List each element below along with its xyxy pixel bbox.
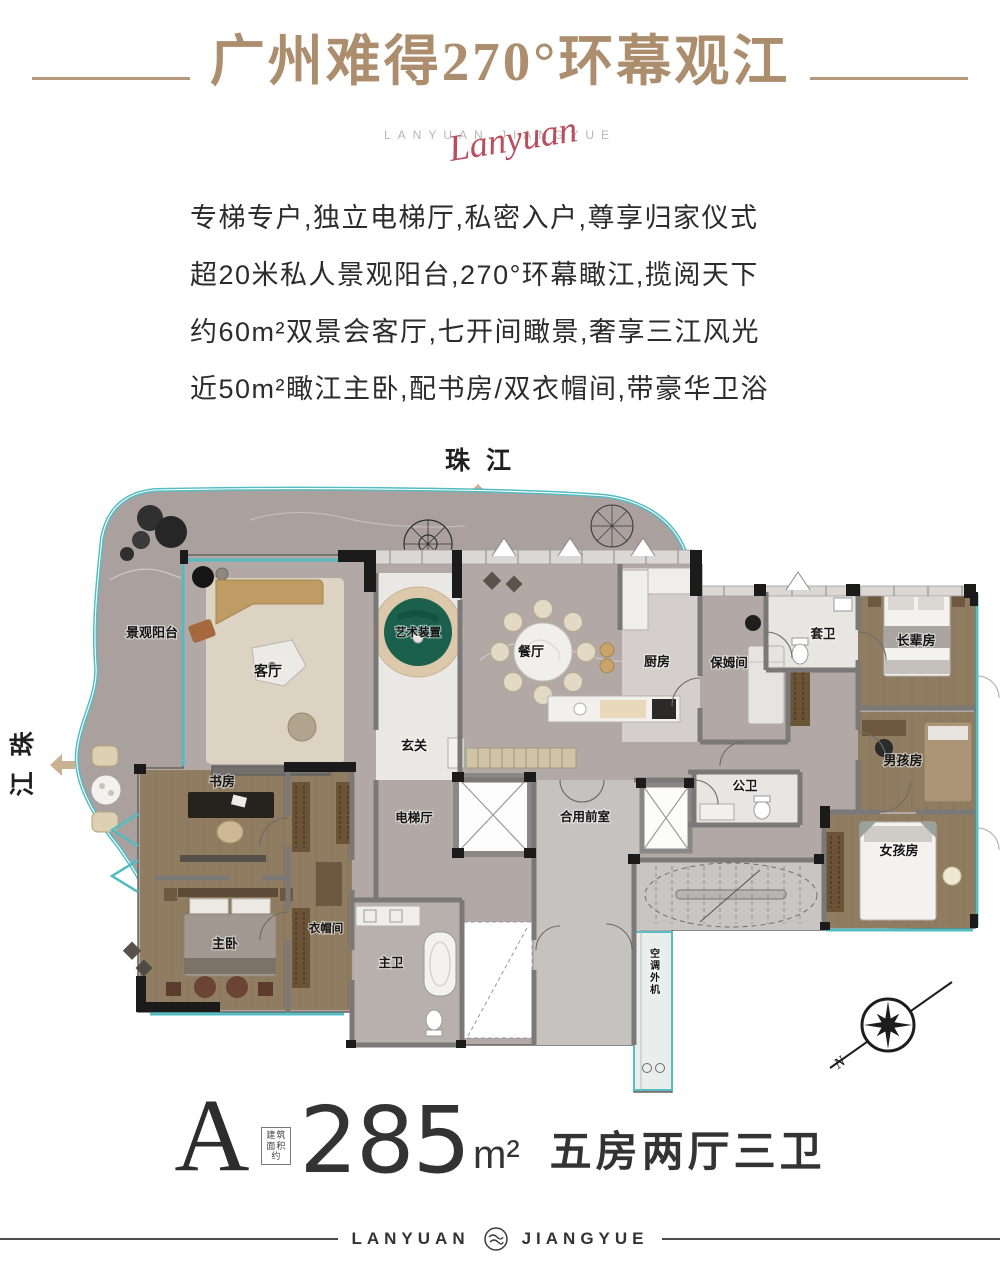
room-label-nanny: 保姆间 — [709, 655, 748, 670]
layout-text: 五房两厅三卫 — [550, 1131, 826, 1173]
room-label-master: 主卧 — [212, 936, 238, 951]
room-label-dining: 餐厅 — [517, 644, 544, 659]
river-label-top: 珠江 — [0, 441, 986, 477]
intro-text: 专梯专户,独立电梯厅,私密入户,尊享归家仪式 超20米私人景观阳台,270°环幕… — [190, 190, 810, 418]
title-rule-right — [810, 77, 968, 80]
footer-rule-right — [662, 1238, 1000, 1240]
room-label-ensuite-bath: 套卫 — [809, 626, 836, 641]
room-label-living: 客厅 — [253, 663, 282, 679]
room-label-elder: 长辈房 — [896, 633, 935, 648]
page-title-row: 广州难得270°环幕观江 — [0, 26, 1000, 98]
floorplan: 景观阳台 客厅 艺术装置 玄关 餐厅 厨房 保姆间 套卫 长辈房 男孩房 女孩房… — [0, 480, 1000, 1105]
footer-logo-icon — [483, 1226, 509, 1252]
room-label-study: 书房 — [209, 774, 235, 789]
room-label-balcony: 景观阳台 — [126, 625, 178, 640]
unit-spec: A 建筑面积约 285 m² 五房两厅三卫 — [0, 1094, 1000, 1177]
room-label-master-bath: 主卫 — [378, 955, 404, 970]
title-rule-left — [32, 77, 190, 80]
footer-brand-left: LANYUAN — [351, 1229, 469, 1249]
compass-icon: N — [830, 982, 952, 1073]
room-label-kitchen: 厨房 — [644, 654, 670, 669]
room-label-shared-lobby: 合用前室 — [560, 809, 611, 824]
room-label-elevator-hall: 电梯厅 — [395, 810, 433, 825]
intro-line-3: 约60m²双景会客厅,七开间瞰景,奢享三江风光 — [190, 304, 810, 361]
footer-brand-right: JIANGYUE — [522, 1229, 649, 1249]
footer-rule-left — [0, 1238, 338, 1240]
unit-letter: A — [174, 1094, 249, 1177]
room-label-cloakroom: 衣帽间 — [309, 921, 344, 935]
area-unit: m² — [473, 1135, 520, 1175]
page-title: 广州难得270°环幕观江 — [210, 26, 791, 98]
intro-line-2: 超20米私人景观阳台,270°环幕瞰江,揽阅天下 — [190, 247, 810, 304]
room-label-girl: 女孩房 — [879, 843, 918, 858]
area-note: 建筑面积约 — [261, 1127, 291, 1165]
area-value: 285 — [299, 1104, 469, 1178]
room-label-boy: 男孩房 — [883, 753, 922, 768]
room-label-art: 艺术装置 — [395, 625, 441, 639]
footer: LANYUAN JIANGYUE — [0, 1226, 1000, 1252]
intro-line-1: 专梯专户,独立电梯厅,私密入户,尊享归家仪式 — [190, 190, 810, 247]
room-label-public-bath: 公卫 — [732, 779, 758, 793]
intro-line-4: 近50m²瞰江主卧,配书房/双衣帽间,带豪华卫浴 — [190, 361, 810, 418]
brand-logo: LANYUAN JIANGYUE Lanyuan — [0, 116, 1000, 190]
room-label-foyer: 玄关 — [401, 738, 427, 753]
